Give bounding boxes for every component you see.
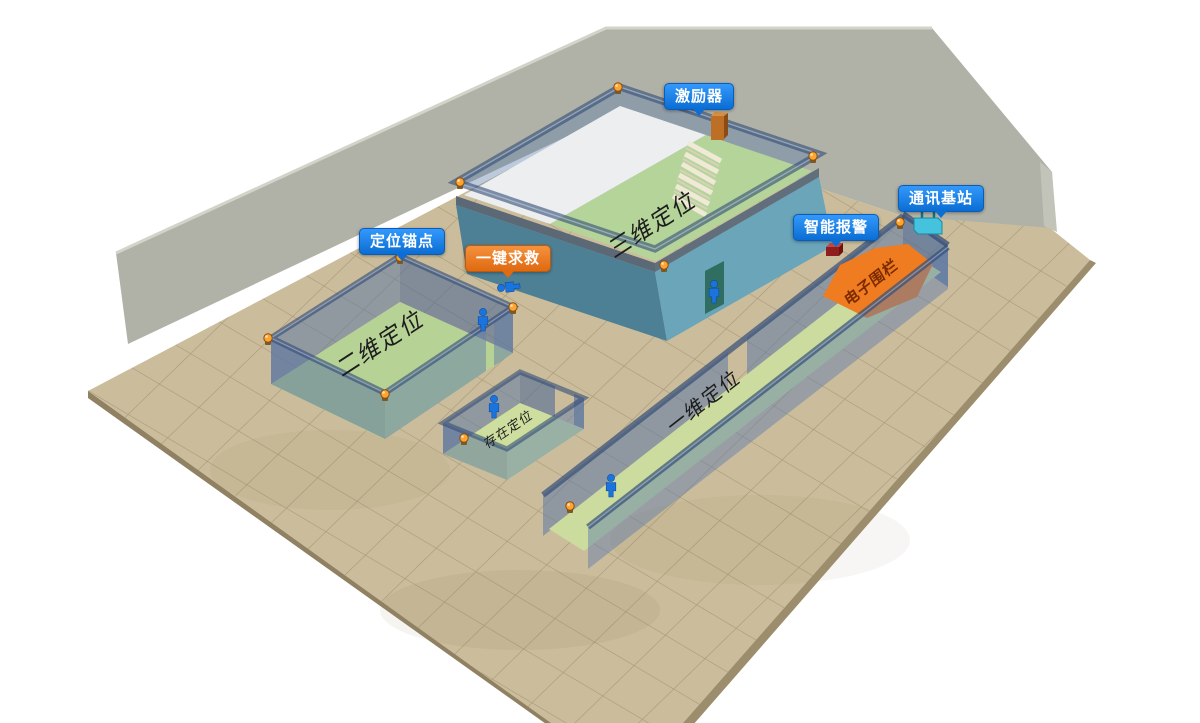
callout-exciter[interactable]: 激励器 <box>664 83 734 110</box>
callout-sos-call[interactable]: 一键求救 <box>465 245 551 272</box>
isometric-scene <box>0 0 1200 723</box>
exciter-device-icon[interactable] <box>711 112 728 140</box>
anchor-icon[interactable] <box>896 218 904 229</box>
callout-anchor-point[interactable]: 定位锚点 <box>359 228 445 255</box>
anchor-icon[interactable] <box>264 334 272 345</box>
anchor-icon[interactable] <box>456 178 464 189</box>
anchor-icon[interactable] <box>460 434 468 445</box>
anchor-icon[interactable] <box>381 390 389 401</box>
anchor-icon[interactable] <box>614 83 622 94</box>
anchor-icon[interactable] <box>509 303 517 314</box>
callout-smart-alarm[interactable]: 智能报警 <box>793 214 879 241</box>
anchor-icon[interactable] <box>660 261 668 272</box>
anchor-icon[interactable] <box>566 502 574 513</box>
anchor-icon[interactable] <box>809 152 817 163</box>
scene-3d-positioning-demo: 二维定位 三维定位 存在定位 一维定位 电子围栏 定位锚点 一键求救 激励器 智… <box>0 0 1200 723</box>
callout-comm-base-station[interactable]: 通讯基站 <box>898 185 984 212</box>
